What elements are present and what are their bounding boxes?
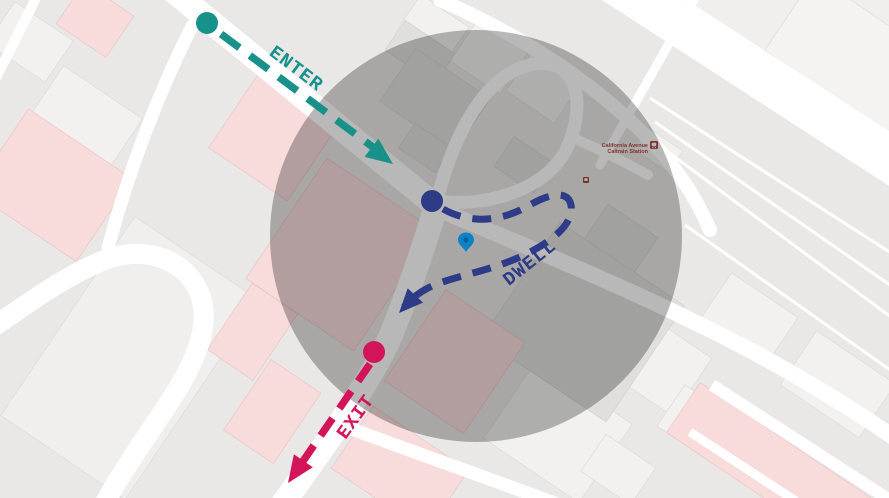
exit-point-marker[interactable] bbox=[363, 341, 385, 363]
location-pin-dot bbox=[463, 237, 468, 242]
enter-point-marker[interactable] bbox=[196, 12, 218, 34]
map-canvas[interactable]: California Avenue Caltrain Station ENTER… bbox=[0, 0, 889, 498]
geofence-circle[interactable] bbox=[270, 30, 682, 442]
dwell-point-marker[interactable] bbox=[421, 190, 443, 212]
